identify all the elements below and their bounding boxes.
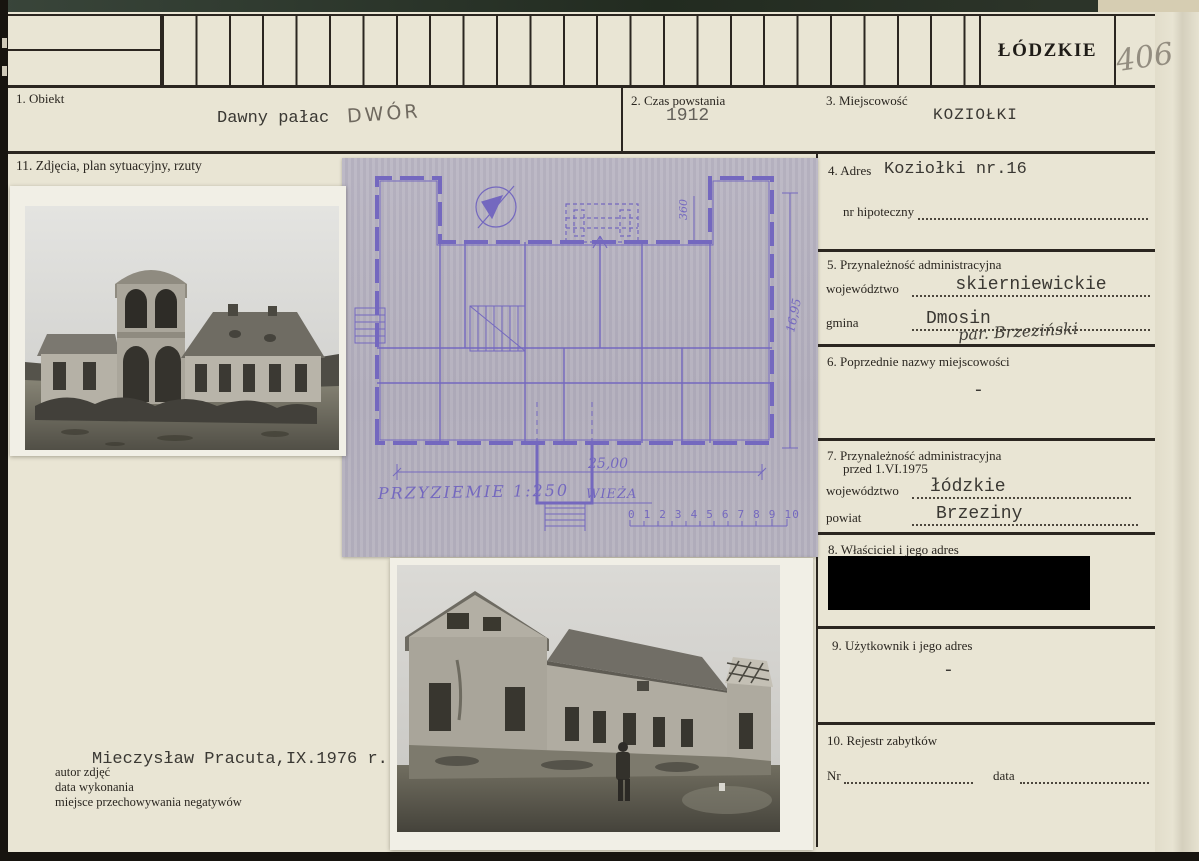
hipoteczny-row: nr hipoteczny bbox=[843, 204, 1148, 220]
field-poprzednie-value: - bbox=[973, 381, 984, 401]
rejestr-nr-label: Nr bbox=[827, 768, 841, 784]
gmina-label: gmina bbox=[826, 315, 912, 331]
rejestr-data-blank bbox=[1020, 782, 1149, 784]
dimension-line-width bbox=[393, 464, 766, 480]
floor-plan-drawing: 25,00 16,95 360 PRZYZIEMIE 1:250 WIEŻA 0… bbox=[342, 158, 818, 557]
tab-row-bottom-rule bbox=[8, 85, 1155, 88]
field-miejscowosc-value: KOZIOŁKI bbox=[933, 106, 1018, 124]
card-left-edge bbox=[0, 0, 8, 861]
date-label: data wykonania bbox=[55, 780, 134, 795]
plan-height-dim: 16,95 bbox=[783, 297, 804, 334]
compass-rose bbox=[476, 186, 516, 228]
field-uzytkownik-value: - bbox=[943, 661, 954, 681]
backing-card-corner bbox=[1098, 0, 1199, 12]
edge-mark bbox=[2, 66, 7, 76]
powiat-label: powiat bbox=[826, 510, 912, 526]
floor-plan-sheet: 25,00 16,95 360 PRZYZIEMIE 1:250 WIEŻA 0… bbox=[342, 158, 818, 557]
field-uzytkownik-label: 9. Użytkownik i jego adres bbox=[832, 638, 972, 654]
separator bbox=[818, 722, 1155, 725]
palace-ruin-photo bbox=[397, 565, 780, 832]
index-box-midline bbox=[8, 49, 162, 51]
field-zdjecia-label: 11. Zdjęcia, plan sytuacyjny, rzuty bbox=[16, 158, 202, 174]
region-stamp: ŁÓDZKIE bbox=[998, 40, 1097, 62]
field-row-bottom-rule bbox=[8, 151, 1155, 154]
photo-print-2 bbox=[390, 558, 813, 850]
author-value: Mieczysław Pracuta,IX.1976 r. bbox=[92, 750, 388, 769]
edge-mark bbox=[2, 38, 7, 48]
powiat-row: powiat Brzeziny bbox=[826, 505, 1138, 526]
rejestr-nr-blank bbox=[844, 782, 973, 784]
plan-scale-numbers: 0 1 2 3 4 5 6 7 8 9 10 bbox=[628, 508, 800, 521]
hipoteczny-blank bbox=[918, 218, 1148, 220]
field-przynaleznosc-label: 5. Przynależność administracyjna bbox=[827, 257, 1001, 273]
wojewodztwo-row: województwo skierniewickie bbox=[826, 276, 1150, 297]
wojewodztwo-value: skierniewickie bbox=[912, 276, 1150, 297]
hipoteczny-label: nr hipoteczny bbox=[843, 204, 914, 220]
wojewodztwo-1975-row: województwo łódzkie bbox=[826, 478, 1131, 499]
plan-tower-label: WIEŻA bbox=[586, 485, 637, 502]
plan-width-dim: 25,00 bbox=[587, 456, 628, 472]
rejestr-data-label: data bbox=[993, 768, 1015, 784]
wojewodztwo-1975-value: łódzkie bbox=[912, 478, 1131, 499]
photo-print-1 bbox=[10, 186, 346, 456]
field-obiekt-value: Dawny pałac bbox=[217, 109, 329, 128]
field-przynaleznosc-1975-label2: przed 1.VI.1975 bbox=[843, 461, 928, 477]
separator bbox=[818, 626, 1155, 629]
plan-top-dim: 360 bbox=[677, 199, 690, 220]
plan-title: PRZYZIEMIE 1:250 bbox=[377, 481, 569, 503]
powiat-value: Brzeziny bbox=[912, 505, 1138, 526]
terrace-dashed bbox=[566, 204, 638, 242]
field-poprzednie-label: 6. Poprzednie nazwy miejscowości bbox=[827, 354, 1010, 370]
stamp-cell: ŁÓDZKIE bbox=[979, 16, 1116, 86]
paper-crease bbox=[1155, 12, 1199, 852]
field-rejestr-label: 10. Rejestr zabytków bbox=[827, 733, 937, 749]
wojewodztwo-label: województwo bbox=[826, 281, 912, 297]
palace-front-photo bbox=[25, 206, 339, 450]
index-tab-grid bbox=[162, 16, 979, 86]
field-obiekt-label: 1. Obiekt bbox=[16, 91, 64, 107]
card-top-edge bbox=[0, 0, 1199, 12]
field-czas-value: 1912 bbox=[666, 106, 709, 126]
field-adres-label: 4. Adres bbox=[828, 163, 871, 179]
redaction-box bbox=[828, 556, 1090, 610]
separator bbox=[818, 532, 1155, 535]
field-obiekt-handwritten: DWÓR bbox=[346, 100, 421, 127]
field-miejscowosc-label: 3. Miejscowość bbox=[826, 93, 908, 109]
separator bbox=[818, 344, 1155, 347]
separator bbox=[818, 438, 1155, 441]
negatives-label: miejsce przechowywania negatywów bbox=[55, 795, 242, 810]
separator bbox=[818, 249, 1155, 252]
field-divider-1-2 bbox=[621, 88, 623, 152]
card-bottom-edge bbox=[0, 852, 1199, 861]
field-adres-value: Koziołki nr.16 bbox=[884, 160, 1027, 179]
record-card: ŁÓDZKIE 406 1. Obiekt Dawny pałac DWÓR 2… bbox=[0, 0, 1199, 861]
wojewodztwo-1975-label: województwo bbox=[826, 483, 912, 499]
rejestr-row: Nr data bbox=[827, 768, 1149, 784]
